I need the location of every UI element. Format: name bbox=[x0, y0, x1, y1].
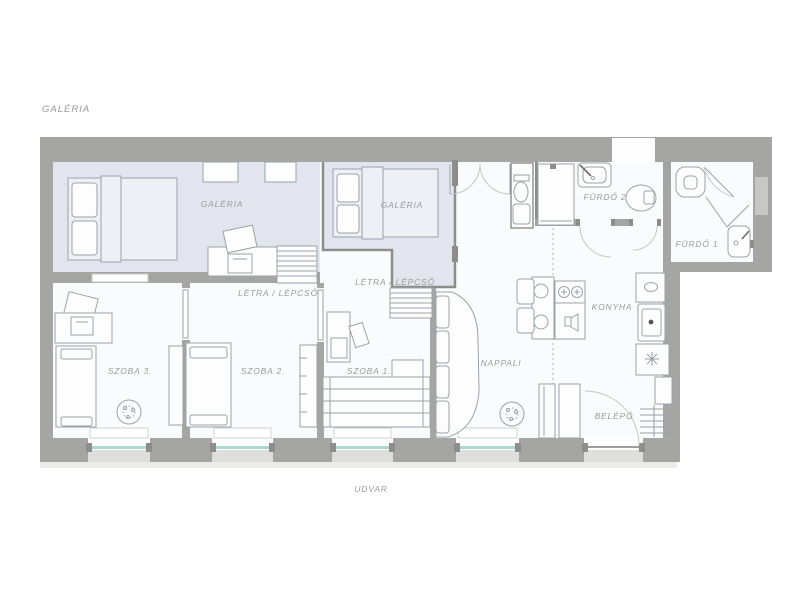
door-leaf-szoba3 bbox=[183, 290, 188, 338]
wall-top bbox=[40, 137, 772, 162]
label-galeria-left: GALÉRIA bbox=[201, 199, 243, 209]
chair-icon bbox=[517, 308, 534, 333]
desk-drawer-icon bbox=[331, 338, 347, 358]
shower-icon bbox=[538, 164, 574, 225]
desk-drawer-icon bbox=[228, 254, 252, 273]
stove-knob bbox=[649, 320, 654, 325]
label-szoba3: SZOBA 3. bbox=[108, 366, 152, 376]
window-4 bbox=[454, 438, 521, 462]
toilet-icon bbox=[676, 167, 705, 197]
door-stub bbox=[657, 219, 661, 226]
sofa-cushion bbox=[436, 366, 449, 398]
shower-head-icon bbox=[550, 164, 556, 169]
wardrobe-icon bbox=[559, 384, 580, 438]
label-furdo2: FÜRDŐ 2 bbox=[584, 192, 627, 202]
window-2 bbox=[210, 438, 275, 462]
pillow-icon bbox=[61, 349, 92, 359]
window-sill bbox=[90, 428, 148, 438]
door-hatch-bath1 bbox=[664, 163, 670, 187]
fridge-icon bbox=[636, 344, 669, 375]
label-letra-mid: LÉTRA / LÉPCSŐ bbox=[355, 277, 435, 287]
bed-footboard bbox=[61, 417, 92, 426]
toilet-icon bbox=[626, 185, 656, 211]
wall-bath1-left bbox=[663, 160, 671, 272]
closet-icon bbox=[300, 345, 317, 427]
wall-bottom-shadow bbox=[40, 462, 677, 468]
sofa-cushion bbox=[436, 331, 449, 363]
pillow-icon bbox=[337, 205, 359, 233]
ladder-stairs-mid-icon bbox=[390, 288, 432, 318]
bunk-bed-icon bbox=[323, 377, 430, 427]
window-3 bbox=[330, 438, 395, 462]
faucet-mount bbox=[750, 240, 754, 248]
wall-stub-gallery-right-bottom bbox=[452, 246, 458, 262]
pillow-icon bbox=[72, 221, 97, 255]
window-sill bbox=[458, 428, 517, 438]
label-szoba1: SZOBA 1. bbox=[347, 366, 391, 376]
door-opening-bath2-left bbox=[580, 219, 611, 226]
wardrobe-icon bbox=[539, 384, 555, 438]
ladder-stairs-left-icon bbox=[277, 246, 317, 283]
wall-top-notch bbox=[612, 138, 655, 162]
duvet-fold-icon bbox=[101, 176, 121, 262]
label-letra-left: LÉTRA / LÉPCSŐ bbox=[238, 288, 318, 298]
wardrobe-icon bbox=[169, 346, 183, 425]
washbasin-icon bbox=[728, 226, 750, 257]
bed-footboard bbox=[190, 415, 227, 425]
window-sill bbox=[214, 428, 271, 438]
label-galeria-top: GALÉRIA bbox=[42, 104, 90, 115]
pillow-icon bbox=[337, 174, 359, 202]
label-furdo1: FÜRDŐ 1 bbox=[676, 239, 719, 249]
sofa-cushion bbox=[436, 296, 449, 328]
pillow-icon bbox=[72, 183, 97, 217]
roof-window-icon bbox=[203, 162, 238, 182]
label-nappali: NAPPALI bbox=[481, 358, 522, 368]
window-sill bbox=[334, 428, 391, 438]
toilet-icon bbox=[514, 182, 528, 202]
kitchen-sink-cabinet bbox=[636, 273, 665, 302]
label-belepo: BELÉPŐ bbox=[595, 411, 634, 421]
sofa-cushion bbox=[436, 401, 449, 433]
toilet-tank-icon bbox=[514, 175, 529, 181]
floorplan-canvas: GALÉRIA GALÉRIA GALÉRIA LÉTRA / LÉPCSŐ L… bbox=[0, 0, 800, 600]
label-galeria-mid: GALÉRIA bbox=[381, 200, 423, 210]
door-leaf-szoba2 bbox=[318, 290, 323, 340]
wall-right-recess bbox=[755, 177, 768, 215]
wall-left bbox=[40, 137, 53, 462]
wall-stub-gallery-right-top bbox=[452, 160, 458, 186]
small-sink-icon bbox=[513, 204, 530, 224]
internal-window bbox=[92, 274, 148, 282]
label-konyha: KONYHA bbox=[592, 302, 633, 312]
floorplan-drawing: GALÉRIA GALÉRIA GALÉRIA LÉTRA / LÉPCSŐ L… bbox=[0, 0, 800, 600]
label-szoba2: SZOBA 2. bbox=[241, 366, 285, 376]
label-udvar: UDVAR bbox=[354, 484, 387, 494]
door-opening-bath2-right bbox=[633, 219, 657, 226]
wc-column bbox=[511, 163, 533, 228]
window-1 bbox=[86, 438, 152, 462]
entry-door-threshold bbox=[582, 438, 645, 462]
door-stub bbox=[576, 219, 580, 226]
door-stub bbox=[629, 219, 633, 226]
door-stub bbox=[611, 219, 615, 226]
chair-icon bbox=[517, 279, 534, 304]
roof-window-icon bbox=[265, 162, 296, 182]
cabinet-icon bbox=[655, 377, 672, 404]
pillow-icon bbox=[190, 347, 227, 358]
desk-drawer-icon bbox=[71, 317, 93, 335]
